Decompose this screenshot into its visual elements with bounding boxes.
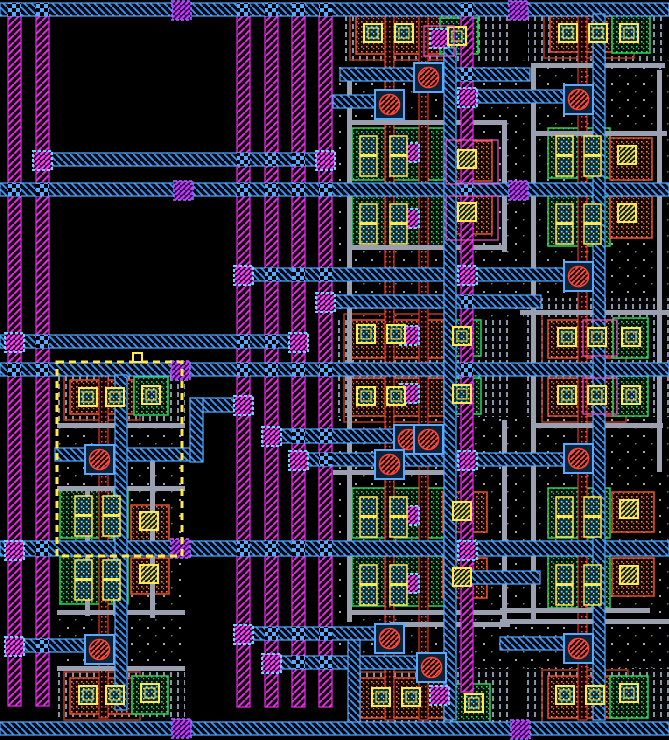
poly-contact-icon xyxy=(380,95,400,115)
metal-overlap xyxy=(237,183,250,196)
metal1-bus[interactable] xyxy=(0,3,669,16)
li-wire-vertical[interactable] xyxy=(657,70,662,472)
via-metal1-metal2[interactable] xyxy=(289,333,308,352)
metal-overlap xyxy=(265,541,278,556)
contact-column-divider xyxy=(75,578,92,581)
metal-overlap xyxy=(319,656,332,669)
poly-contact-icon xyxy=(569,267,589,287)
via-m1m2-purple-hatch xyxy=(511,720,530,739)
metal-overlap xyxy=(319,183,332,196)
poly-contact-icon xyxy=(90,640,110,660)
diff-contact[interactable] xyxy=(106,686,124,704)
diff-contact[interactable] xyxy=(395,24,413,42)
diff-contact[interactable] xyxy=(79,388,97,406)
metal-overlap xyxy=(36,639,49,652)
li-wire-horizontal[interactable] xyxy=(500,608,650,613)
contact-column-divider xyxy=(556,583,573,586)
diff-contact[interactable] xyxy=(453,385,471,403)
diff-contact[interactable] xyxy=(142,386,160,404)
contact-column-divider xyxy=(584,515,601,518)
metal-overlap xyxy=(292,3,305,16)
contact-column-divider xyxy=(360,515,377,518)
tap-contact[interactable] xyxy=(140,565,158,583)
metal-overlap xyxy=(292,656,305,669)
metal1-wire-vertical[interactable] xyxy=(115,375,127,710)
contact-column-divider xyxy=(390,154,407,157)
metal-overlap xyxy=(461,295,473,308)
li-wire-vertical[interactable] xyxy=(531,63,536,623)
contact-column-divider xyxy=(390,583,407,586)
metal-overlap xyxy=(292,363,305,376)
metal-overlap xyxy=(292,541,305,556)
diff-contact[interactable] xyxy=(79,686,97,704)
via-metal1-metal2[interactable] xyxy=(430,29,449,48)
diff-contact[interactable] xyxy=(106,388,124,406)
contact-column-divider xyxy=(556,515,573,518)
metal1-bus[interactable] xyxy=(0,363,669,376)
diff-contact[interactable] xyxy=(586,686,604,704)
metal-overlap xyxy=(319,627,332,640)
via-metal1-metal2[interactable] xyxy=(458,88,477,107)
li-wire-horizontal[interactable] xyxy=(347,610,507,615)
poly-contact-icon xyxy=(569,90,589,110)
metal-overlap xyxy=(8,183,21,196)
contact-column-divider xyxy=(360,154,377,157)
selection-handle[interactable] xyxy=(133,353,142,362)
metal-overlap xyxy=(237,3,250,16)
metal1-wire-vertical[interactable] xyxy=(348,640,360,722)
poly-contact-icon xyxy=(422,658,442,678)
metal-overlap xyxy=(292,268,305,281)
metal2-rail[interactable] xyxy=(319,3,332,707)
li-wire-vertical[interactable] xyxy=(347,68,352,622)
via-m1m2-purple-hatch xyxy=(509,181,528,200)
poly-contact-icon xyxy=(380,455,400,475)
metal1-bus[interactable] xyxy=(0,183,669,196)
diff-contact[interactable] xyxy=(372,688,390,706)
tap-contact[interactable] xyxy=(458,203,476,221)
metal-overlap xyxy=(319,429,332,443)
poly-contact-icon xyxy=(90,450,110,470)
poly-contact-icon xyxy=(419,430,439,450)
contact-column-divider xyxy=(584,222,601,225)
diff-contact[interactable] xyxy=(588,386,606,404)
diff-contact[interactable] xyxy=(465,694,483,712)
poly-contact-icon xyxy=(380,629,400,649)
contact-column-divider xyxy=(584,583,601,586)
metal-overlap xyxy=(36,183,49,196)
poly-contact-icon xyxy=(419,68,439,88)
diff-contact[interactable] xyxy=(387,387,405,405)
metal-overlap xyxy=(461,68,473,81)
contact-column-divider xyxy=(75,514,92,517)
via-metal1-metal2[interactable] xyxy=(234,396,253,415)
metal-overlap xyxy=(237,335,250,348)
via-metal1-metal2[interactable] xyxy=(5,541,24,560)
layout-canvas[interactable] xyxy=(0,0,669,740)
metal-overlap xyxy=(265,335,278,348)
metal-overlap xyxy=(265,627,278,640)
metal-overlap xyxy=(292,627,305,640)
diff-contact[interactable] xyxy=(402,688,420,706)
li-wire-horizontal[interactable] xyxy=(347,120,505,125)
contact-column-divider xyxy=(390,222,407,225)
via-metal1-metal2[interactable] xyxy=(430,686,449,705)
metal-overlap xyxy=(8,363,21,376)
poly-contact-icon xyxy=(569,449,589,469)
metal-overlap xyxy=(319,453,332,466)
contact-column-divider xyxy=(556,154,573,157)
via-metal1-metal2[interactable] xyxy=(289,451,308,470)
diff-contact[interactable] xyxy=(558,328,576,346)
contact-column-divider xyxy=(390,515,407,518)
metal-overlap xyxy=(319,268,332,281)
metal-overlap xyxy=(36,3,49,16)
tap-contact[interactable] xyxy=(620,566,638,584)
tap-contact[interactable] xyxy=(140,512,158,530)
diff-contact[interactable] xyxy=(556,686,574,704)
tap-contact[interactable] xyxy=(618,204,636,222)
tap-contact[interactable] xyxy=(620,500,638,518)
via-metal1-metal2[interactable] xyxy=(458,451,477,470)
metal-overlap xyxy=(8,3,21,16)
layout-editor-viewport[interactable] xyxy=(0,0,669,740)
diff-contact[interactable] xyxy=(387,325,405,343)
diff-contact[interactable] xyxy=(588,328,606,346)
via-m1m2-purple-hatch xyxy=(509,1,528,20)
contact-column-divider xyxy=(360,222,377,225)
diff-contact[interactable] xyxy=(559,24,577,42)
metal2-rail[interactable] xyxy=(36,3,49,706)
tap-contact[interactable] xyxy=(453,502,471,520)
metal-overlap xyxy=(265,153,278,166)
contact-column-divider xyxy=(556,222,573,225)
diff-contact[interactable] xyxy=(364,24,382,42)
via-metal1-metal2[interactable] xyxy=(234,266,253,285)
via-metal1-metal2[interactable] xyxy=(262,427,281,446)
metal1-bus[interactable] xyxy=(0,722,669,735)
li-wire-vertical[interactable] xyxy=(502,420,507,620)
diff-contact[interactable] xyxy=(141,684,159,702)
metal1-bus[interactable] xyxy=(0,541,669,556)
contact-column-divider xyxy=(584,154,601,157)
via-metal1-metal2[interactable] xyxy=(316,293,335,312)
via-metal1-metal2[interactable] xyxy=(316,151,335,170)
diff-contact[interactable] xyxy=(453,327,471,345)
metal-overlap xyxy=(265,3,278,16)
metal1-bus[interactable] xyxy=(500,637,568,650)
tap-contact[interactable] xyxy=(458,150,476,168)
metal1-bus[interactable] xyxy=(237,627,395,640)
metal2-rail[interactable] xyxy=(8,3,21,706)
li-wire-vertical[interactable] xyxy=(150,450,155,618)
metal1-wire-vertical[interactable] xyxy=(593,14,605,720)
metal-overlap xyxy=(319,541,332,556)
via-metal1-metal2[interactable] xyxy=(262,654,281,673)
via-m1m2-purple-hatch xyxy=(174,181,193,200)
metal1-bus[interactable] xyxy=(237,268,583,281)
metal-overlap xyxy=(36,363,49,376)
metal-overlap xyxy=(461,363,473,376)
metal-overlap xyxy=(319,3,332,16)
via-metal1-metal2[interactable] xyxy=(5,333,24,352)
contact-column-divider xyxy=(103,514,120,517)
contact-column-divider xyxy=(103,578,120,581)
poly-contact-icon xyxy=(569,639,589,659)
via-m1m2-purple-hatch xyxy=(172,719,191,738)
li-wire-horizontal[interactable] xyxy=(500,619,669,624)
diff-contact[interactable] xyxy=(622,386,640,404)
metal-overlap xyxy=(237,153,250,166)
diff-contact[interactable] xyxy=(558,386,576,404)
diff-contact[interactable] xyxy=(357,387,375,405)
metal-overlap xyxy=(36,335,49,348)
metal1-bus[interactable] xyxy=(465,571,540,584)
li-wire-horizontal[interactable] xyxy=(347,245,505,250)
metal-overlap xyxy=(265,363,278,376)
diff-contact[interactable] xyxy=(357,325,375,343)
via-metal1-metal2[interactable] xyxy=(33,151,52,170)
via-m1m2-purple-hatch xyxy=(172,1,191,20)
diff-contact[interactable] xyxy=(589,24,607,42)
metal-overlap xyxy=(265,183,278,196)
metal-overlap xyxy=(461,3,473,16)
metal-overlap xyxy=(36,541,49,556)
via-metal1-metal2[interactable] xyxy=(458,541,477,560)
metal1-bus[interactable] xyxy=(36,153,332,166)
metal-overlap xyxy=(265,268,278,281)
metal1-bus[interactable] xyxy=(319,295,541,308)
tap-contact[interactable] xyxy=(618,146,636,164)
metal-overlap xyxy=(292,429,305,443)
diff-contact[interactable] xyxy=(620,24,638,42)
via-metal1-metal2[interactable] xyxy=(234,625,253,644)
metal1-wire-vertical[interactable] xyxy=(190,398,203,462)
tap-contact[interactable] xyxy=(453,568,471,586)
metal-overlap xyxy=(292,183,305,196)
metal-overlap xyxy=(319,363,332,376)
metal2-rail[interactable] xyxy=(237,3,250,707)
via-metal1-metal2[interactable] xyxy=(458,266,477,285)
metal2-rail[interactable] xyxy=(292,3,305,707)
diff-contact[interactable] xyxy=(622,328,640,346)
metal-overlap xyxy=(461,183,473,196)
metal-overlap xyxy=(292,153,305,166)
via-metal1-metal2[interactable] xyxy=(5,637,24,656)
diff-contact[interactable] xyxy=(448,27,466,45)
metal-overlap xyxy=(237,541,250,556)
contact-column-divider xyxy=(360,583,377,586)
metal-overlap xyxy=(237,363,250,376)
metal2-rail[interactable] xyxy=(265,3,278,707)
diff-contact[interactable] xyxy=(620,684,638,702)
